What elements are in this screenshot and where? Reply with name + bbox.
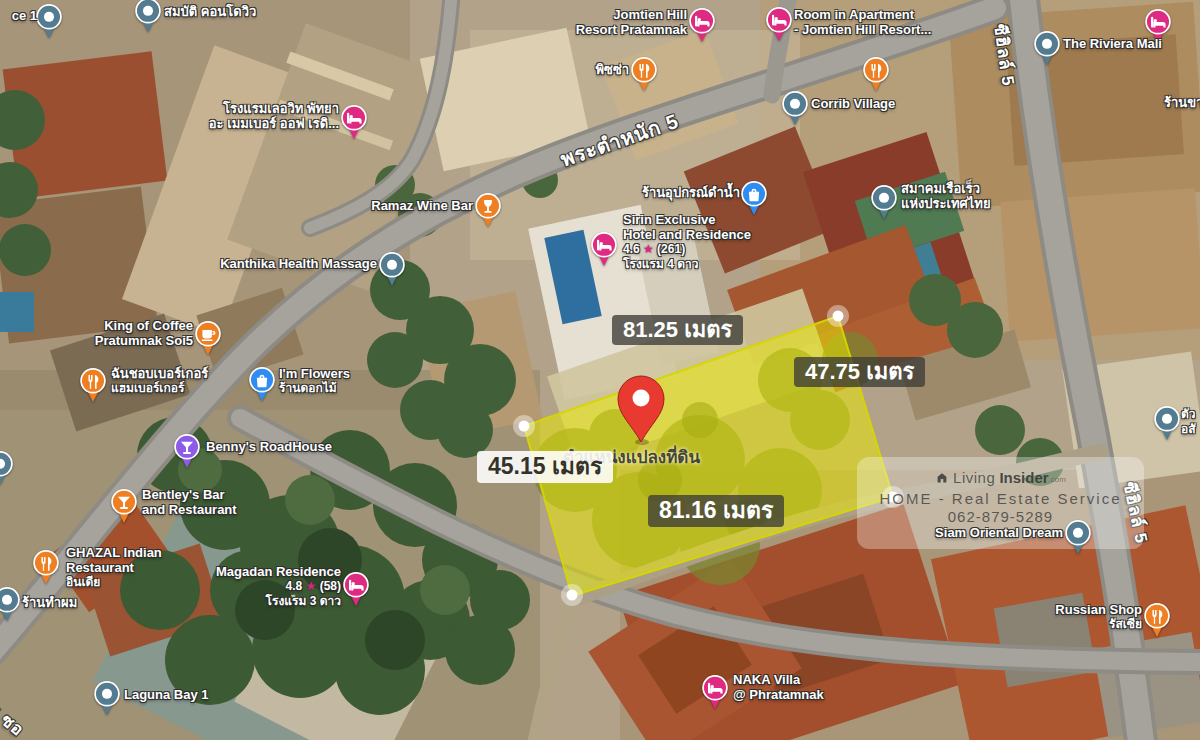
poi-labels-top-layer: Siam Oriental Dream [0, 0, 1200, 740]
satellite-map[interactable]: พระตำหนัก 5ซีฮิลล์ 5ซีฮิลล์ 5เฮีย ซอ ตำแ… [0, 0, 1200, 740]
place-label-siam-oriental-dream[interactable]: Siam Oriental Dream [935, 525, 1063, 540]
generic-map-pin-icon[interactable] [1064, 520, 1092, 555]
